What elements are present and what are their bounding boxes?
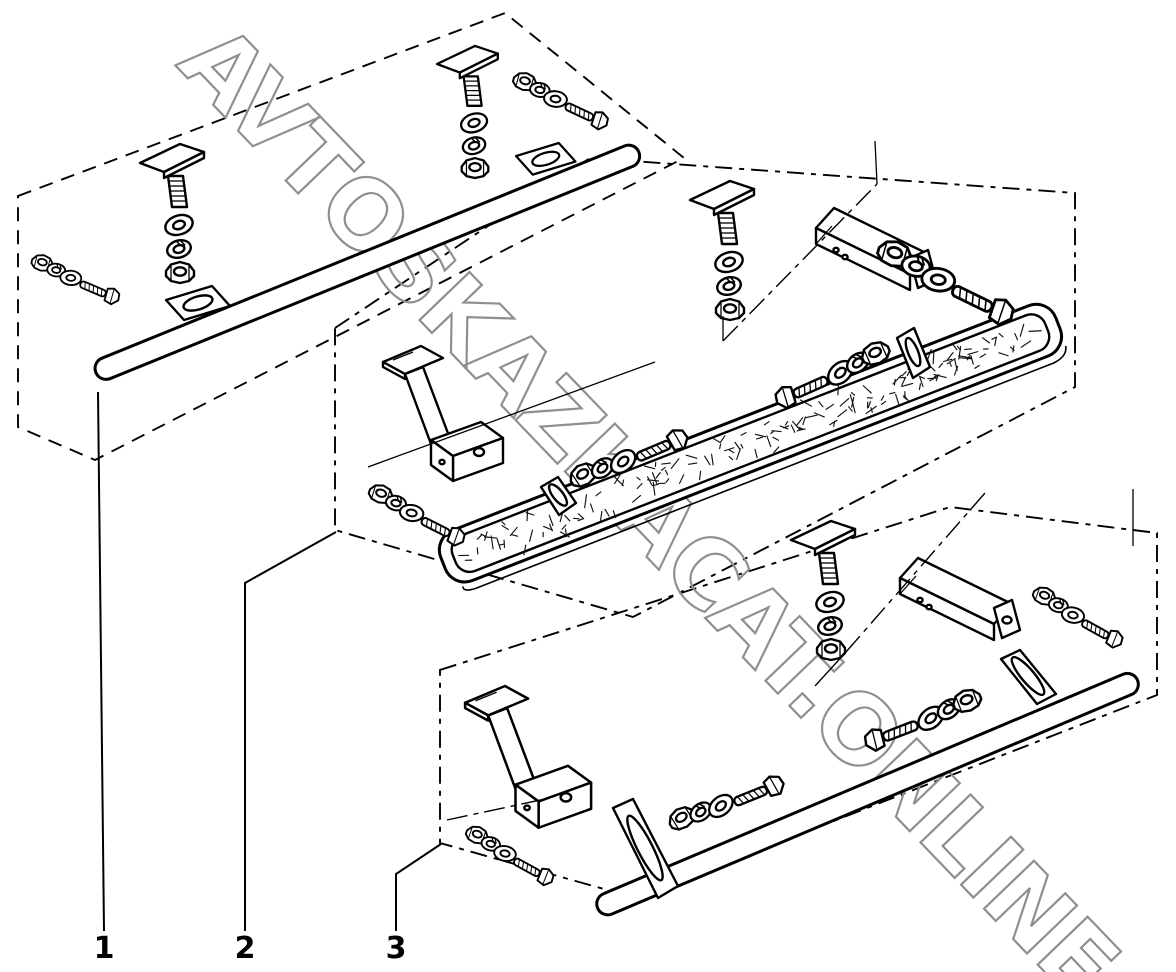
callout-3-label: 3 bbox=[386, 931, 407, 966]
front-bracket bbox=[465, 686, 591, 828]
t-bolt-kit bbox=[437, 46, 498, 178]
bolt-kit bbox=[363, 478, 470, 549]
bolt-kit bbox=[26, 249, 123, 307]
t-bolt-kit bbox=[140, 144, 204, 283]
parts-diagram-page: AVTOSKAZKACAT.ONLINE bbox=[0, 0, 1176, 972]
callouts: 1 2 3 bbox=[94, 392, 441, 966]
t-bolt-kit bbox=[690, 181, 754, 320]
callout-1-label: 1 bbox=[94, 931, 115, 966]
rear-bracket bbox=[900, 558, 1020, 640]
callout-2-label: 2 bbox=[235, 931, 256, 966]
tube-fin bbox=[1001, 650, 1056, 704]
bolt-kit bbox=[460, 820, 559, 889]
axis-line bbox=[846, 493, 985, 652]
pointer-line bbox=[875, 141, 877, 184]
leader-line-3 bbox=[396, 844, 441, 931]
bolt-kit bbox=[1027, 581, 1128, 652]
leader-line-2 bbox=[245, 532, 336, 931]
exploded-parts-diagram: AVTOSKAZKACAT.ONLINE bbox=[0, 0, 1176, 972]
bolt-kit bbox=[507, 67, 613, 134]
leader-line-1 bbox=[98, 392, 104, 931]
